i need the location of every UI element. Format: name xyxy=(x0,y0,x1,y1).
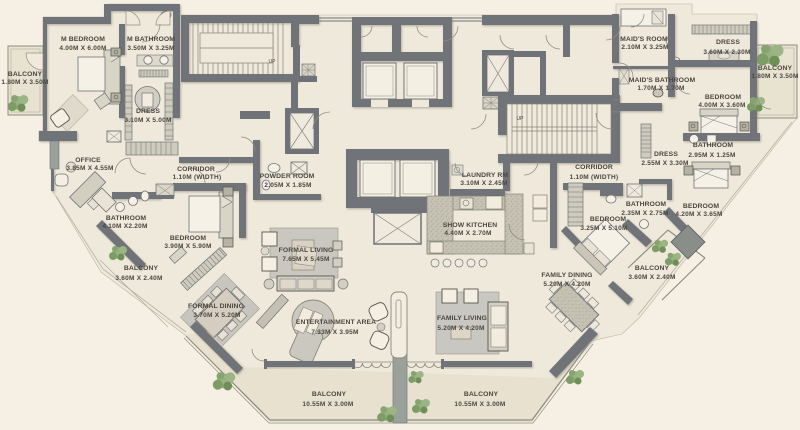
svg-text:5.20M X 4.20M: 5.20M X 4.20M xyxy=(437,325,484,332)
svg-text:3.60M X 2.40M: 3.60M X 2.40M xyxy=(628,274,675,281)
svg-text:POWDER ROOM: POWDER ROOM xyxy=(260,173,315,180)
svg-text:M BEDROOM: M BEDROOM xyxy=(61,36,105,43)
svg-text:4.10M X2.20M: 4.10M X2.20M xyxy=(102,223,147,230)
svg-text:3.10M X 2.45M: 3.10M X 2.45M xyxy=(460,180,507,187)
svg-text:3.90M X 5.90M: 3.90M X 5.90M xyxy=(164,243,211,250)
svg-text:4.20M X 3.65M: 4.20M X 3.65M xyxy=(675,211,722,218)
svg-text:2.10M X 3.25M: 2.10M X 3.25M xyxy=(621,44,668,51)
svg-text:1.80M X 3.50M: 1.80M X 3.50M xyxy=(1,79,48,86)
svg-text:OFFICE: OFFICE xyxy=(75,157,101,164)
svg-text:FORMAL DINING: FORMAL DINING xyxy=(188,303,244,310)
svg-text:10.55M X 3.00M: 10.55M X 3.00M xyxy=(302,401,353,408)
svg-text:DRESS: DRESS xyxy=(136,108,160,115)
svg-text:4.00M X 3.60M: 4.00M X 3.60M xyxy=(698,102,745,109)
svg-text:1.70M X 1.70M: 1.70M X 1.70M xyxy=(637,85,684,92)
svg-text:3.60M X 2.30M: 3.60M X 2.30M xyxy=(703,49,750,56)
svg-text:BALCONY: BALCONY xyxy=(8,71,43,78)
svg-text:BALCONY: BALCONY xyxy=(124,265,159,272)
svg-text:MAID'S BATHROOM: MAID'S BATHROOM xyxy=(629,77,696,84)
svg-text:UP: UP xyxy=(269,59,277,65)
svg-text:3.60M X 2.40M: 3.60M X 2.40M xyxy=(115,275,162,282)
svg-text:UP: UP xyxy=(517,116,525,122)
svg-text:BEDROOM: BEDROOM xyxy=(705,94,741,101)
svg-text:FAMILY DINING: FAMILY DINING xyxy=(541,272,592,279)
svg-text:3.50M X 3.25M: 3.50M X 3.25M xyxy=(127,45,174,52)
svg-text:2.95M X 1.25M: 2.95M X 1.25M xyxy=(688,152,735,159)
svg-text:BEDROOM: BEDROOM xyxy=(170,235,206,242)
svg-text:ENTERTAINMENT AREA: ENTERTAINMENT AREA xyxy=(296,319,376,326)
svg-text:BATHROOM: BATHROOM xyxy=(693,142,734,149)
svg-text:FORMAL LIVING: FORMAL LIVING xyxy=(279,247,334,254)
svg-text:3.10M X 5.00M: 3.10M X 5.00M xyxy=(124,117,171,124)
svg-text:DRESS: DRESS xyxy=(654,151,678,158)
svg-text:5.20M X 4.20M: 5.20M X 4.20M xyxy=(543,281,590,288)
svg-text:2.35M X 2.75M: 2.35M X 2.75M xyxy=(621,210,668,217)
svg-text:7.65M X 5.45M: 7.65M X 5.45M xyxy=(282,256,329,263)
svg-text:3.85M X 4.55M: 3.85M X 4.55M xyxy=(66,165,113,172)
svg-text:1.10M (WIDTH): 1.10M (WIDTH) xyxy=(173,174,222,181)
svg-text:BALCONY: BALCONY xyxy=(312,391,347,398)
svg-text:M BATHROOM: M BATHROOM xyxy=(127,36,175,43)
svg-text:BATHROOM: BATHROOM xyxy=(626,201,667,208)
svg-text:2.55M X 3.30M: 2.55M X 3.30M xyxy=(641,160,688,167)
svg-text:BATHROOM: BATHROOM xyxy=(106,215,147,222)
svg-text:3.70M X 5.20M: 3.70M X 5.20M xyxy=(193,312,240,319)
svg-text:BALCONY: BALCONY xyxy=(464,391,499,398)
svg-text:1.10M (WIDTH): 1.10M (WIDTH) xyxy=(570,174,619,181)
svg-text:1.80M X 3.50M: 1.80M X 3.50M xyxy=(751,73,798,80)
svg-text:MAID'S ROOM: MAID'S ROOM xyxy=(620,36,668,43)
svg-text:CORRIDOR: CORRIDOR xyxy=(575,164,613,171)
svg-text:2.05M X 1.85M: 2.05M X 1.85M xyxy=(264,182,311,189)
svg-text:SHOW KITCHEN: SHOW KITCHEN xyxy=(443,222,497,229)
svg-text:7.33M X 3.95M: 7.33M X 3.95M xyxy=(311,329,358,336)
svg-text:BALCONY: BALCONY xyxy=(635,265,670,272)
svg-text:10.55M X 3.00M: 10.55M X 3.00M xyxy=(454,401,505,408)
svg-text:FAMILY LIVING: FAMILY LIVING xyxy=(437,315,487,322)
svg-text:4.00M X 6.00M: 4.00M X 6.00M xyxy=(59,45,106,52)
svg-text:3.25M X 5.10M: 3.25M X 5.10M xyxy=(580,225,627,232)
svg-text:4.40M X 2.70M: 4.40M X 2.70M xyxy=(444,230,491,237)
svg-text:BEDROOM: BEDROOM xyxy=(683,203,719,210)
svg-text:DRESS: DRESS xyxy=(716,39,740,46)
svg-text:BALCONY: BALCONY xyxy=(758,65,793,72)
svg-text:CORRIDOR: CORRIDOR xyxy=(177,166,215,173)
svg-text:LAUNDRY RM: LAUNDRY RM xyxy=(462,172,509,179)
svg-text:BEDROOM: BEDROOM xyxy=(590,216,626,223)
